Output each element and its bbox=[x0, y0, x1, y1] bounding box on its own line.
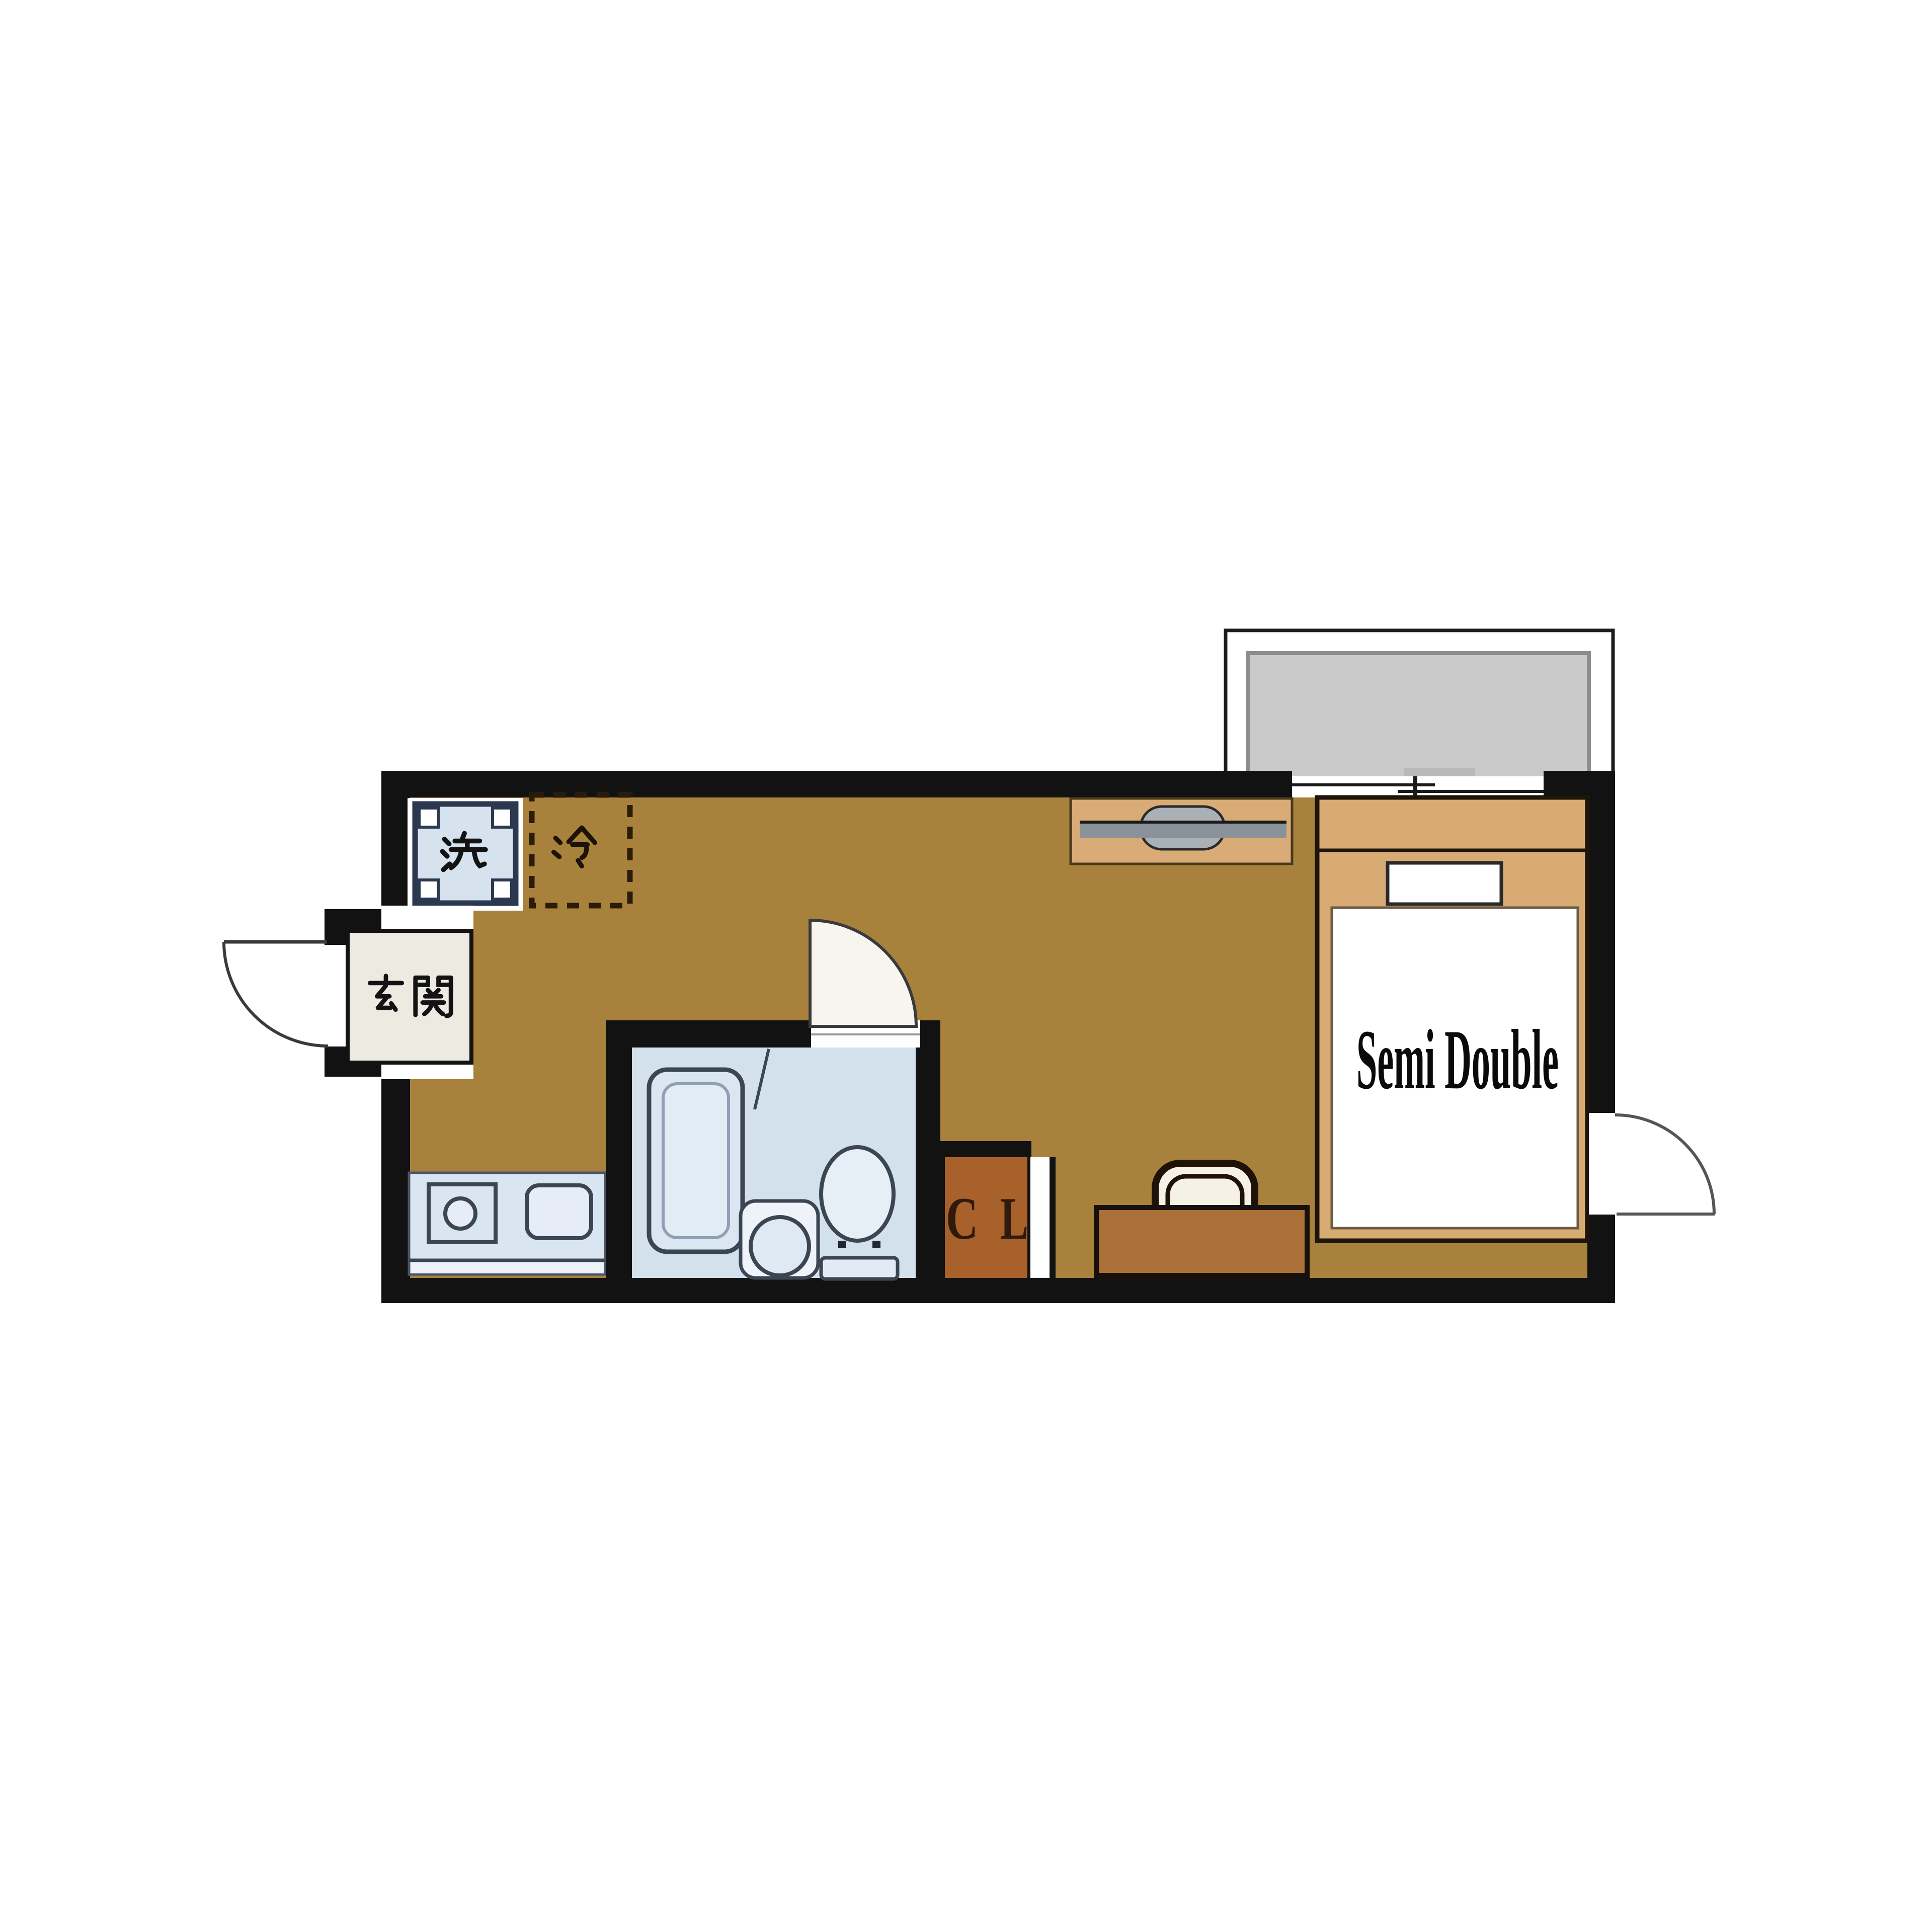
svg-text:C: C bbox=[946, 1185, 978, 1252]
svg-text:Semi Double: Semi Double bbox=[1356, 1012, 1559, 1107]
svg-text:L: L bbox=[1000, 1185, 1028, 1252]
